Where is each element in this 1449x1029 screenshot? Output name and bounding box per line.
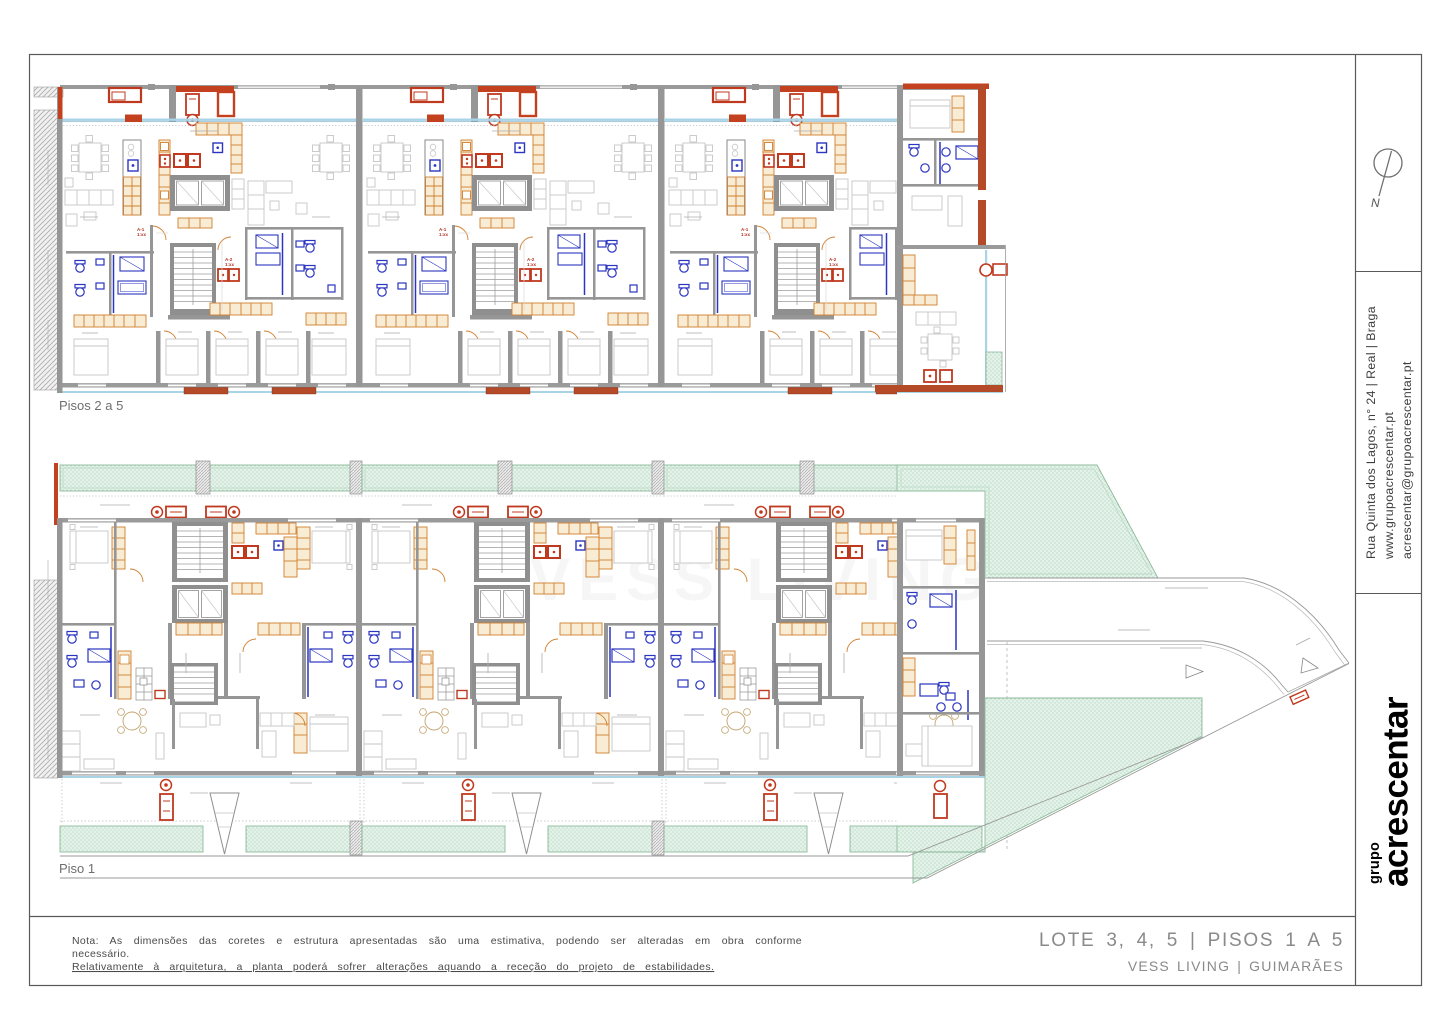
- svg-text:acrescentar: acrescentar: [1377, 696, 1416, 887]
- svg-text:LOTE 3, 4, 5 | PISOS 1 A 5: LOTE 3, 4, 5 | PISOS 1 A 5: [1039, 930, 1344, 951]
- svg-text:Nota: As dimensões das coretes: Nota: As dimensões das coretes e estrutu…: [72, 935, 802, 947]
- svg-text:acrescentar@grupoacrescentar.p: acrescentar@grupoacrescentar.pt: [1400, 361, 1414, 559]
- svg-text:N: N: [1371, 196, 1380, 210]
- svg-text:Piso 1: Piso 1: [59, 861, 95, 876]
- svg-text:necessário.: necessário.: [72, 948, 130, 960]
- svg-text:VESS LIVING | GUIMARÃES: VESS LIVING | GUIMARÃES: [1128, 958, 1344, 974]
- svg-text:Relativamente à arquitetura, a: Relativamente à arquitetura, a planta po…: [72, 961, 714, 973]
- svg-text:Pisos 2 a 5: Pisos 2 a 5: [59, 398, 123, 413]
- svg-text:Rua Quinta dos Lagos, n° 24 |: Rua Quinta dos Lagos, n° 24 | Real | Bra…: [1364, 306, 1378, 559]
- svg-text:www.grupoacrescentar.pt: www.grupoacrescentar.pt: [1382, 412, 1396, 560]
